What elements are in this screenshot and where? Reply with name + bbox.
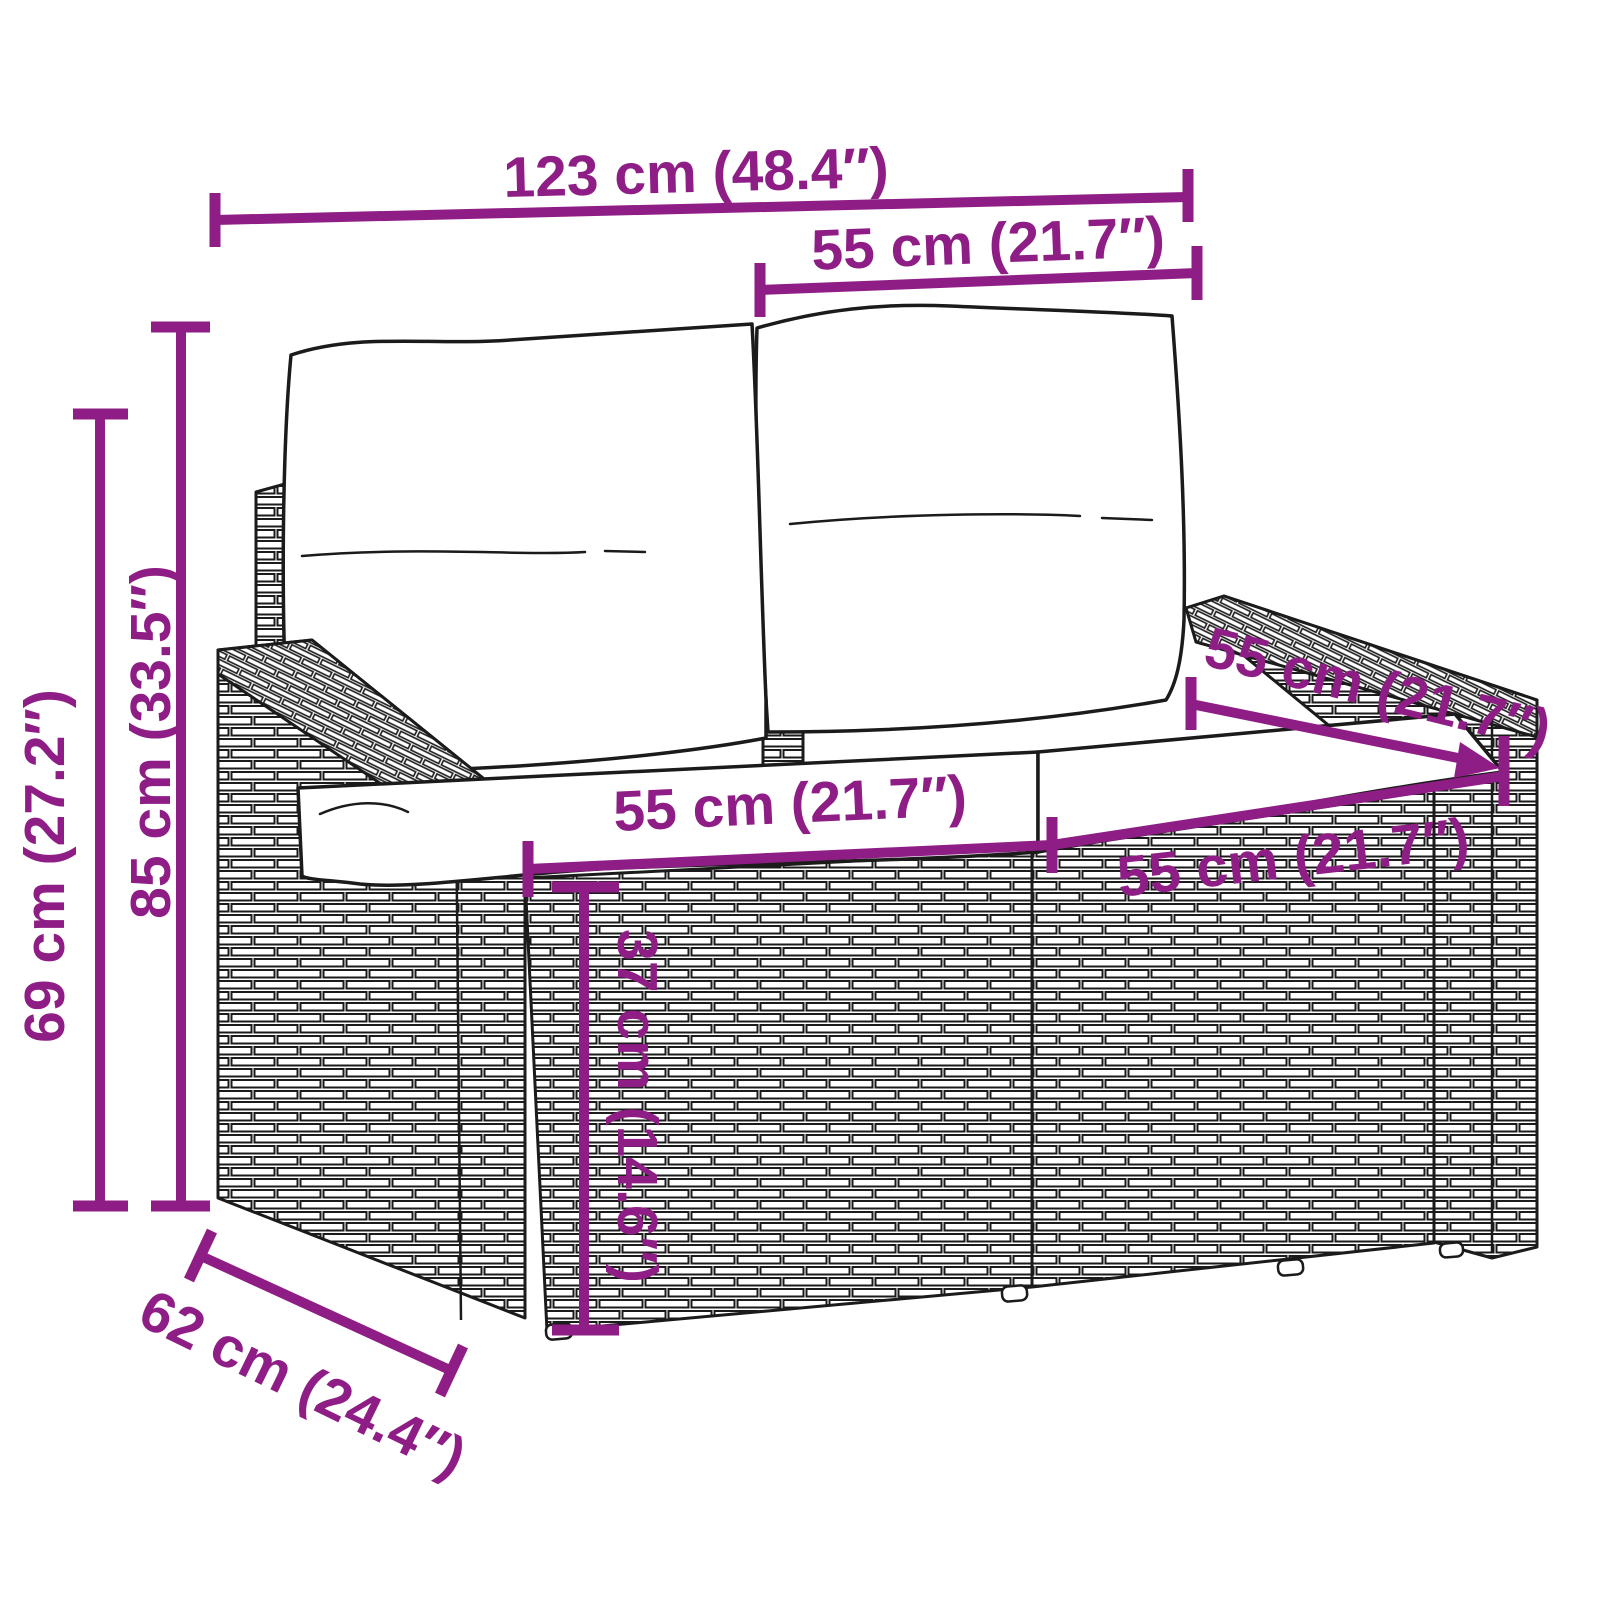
foot <box>1277 1259 1303 1276</box>
dim-label-overall-height: 85 cm (33.5″) <box>119 565 183 919</box>
seat-front-left <box>525 852 1032 1331</box>
back-cushion-right <box>756 305 1184 732</box>
sofa-dimension-diagram: 123 cm (48.4″) 55 cm (21.7″) 85 cm (33.5… <box>0 0 1600 1600</box>
foot <box>1001 1285 1027 1302</box>
dimension-diagram-page: 123 cm (48.4″) 55 cm (21.7″) 85 cm (33.5… <box>0 0 1600 1600</box>
dim-label-back-cushion-width: 55 cm (21.7″) <box>810 205 1166 283</box>
dim-label-overall-width: 123 cm (48.4″) <box>503 136 890 210</box>
foot <box>1439 1242 1463 1258</box>
dim-label-seat-height: 37 cm (14.6″) <box>605 929 669 1283</box>
dim-label-armrest-height: 69 cm (27.2″) <box>13 689 77 1043</box>
